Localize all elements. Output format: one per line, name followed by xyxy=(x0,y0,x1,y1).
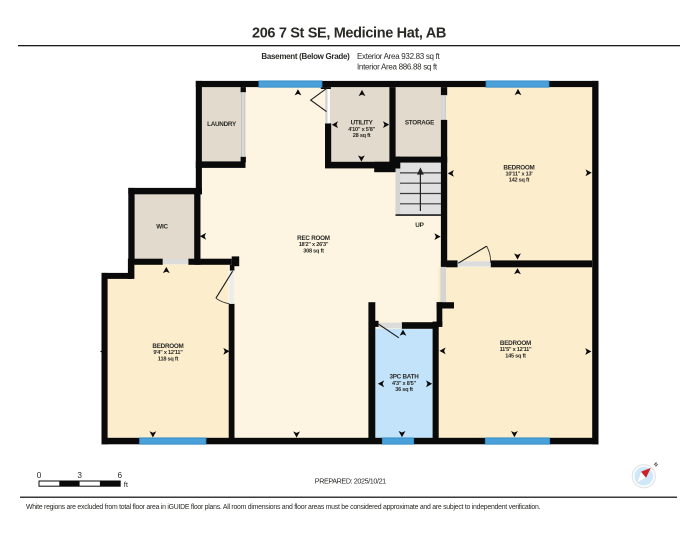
svg-text:9'4" x 12'11": 9'4" x 12'11" xyxy=(153,350,183,356)
svg-text:6: 6 xyxy=(118,471,123,480)
svg-text:145 sq ft: 145 sq ft xyxy=(505,353,526,359)
svg-text:UTILITY: UTILITY xyxy=(351,120,374,127)
svg-text:REC ROOM: REC ROOM xyxy=(297,235,330,242)
svg-text:Basement (Below Grade): Basement (Below Grade) xyxy=(261,52,350,61)
svg-text:308 sq ft: 308 sq ft xyxy=(303,248,324,254)
svg-text:4'3" x 8'5": 4'3" x 8'5" xyxy=(392,381,416,387)
svg-text:206 7 St SE, Medicine Hat, AB: 206 7 St SE, Medicine Hat, AB xyxy=(252,26,446,42)
svg-text:11'5" x 12'11": 11'5" x 12'11" xyxy=(500,347,532,353)
svg-text:3: 3 xyxy=(77,471,82,480)
svg-text:36 sq ft: 36 sq ft xyxy=(395,387,413,393)
svg-text:10'11" x 13': 10'11" x 13' xyxy=(506,172,534,178)
svg-text:BEDROOM: BEDROOM xyxy=(152,343,183,350)
svg-text:PREPARED: 2025/10/21: PREPARED: 2025/10/21 xyxy=(315,477,386,486)
svg-text:0: 0 xyxy=(37,471,42,480)
svg-text:118 sq ft: 118 sq ft xyxy=(158,356,179,362)
svg-text:Interior Area 886.88 sq ft: Interior Area 886.88 sq ft xyxy=(357,63,438,72)
svg-text:WIC: WIC xyxy=(156,223,168,230)
svg-text:28 sq ft: 28 sq ft xyxy=(353,133,371,139)
svg-text:4'10" x 5'8": 4'10" x 5'8" xyxy=(348,127,375,133)
svg-text:White regions are excluded fro: White regions are excluded from total fl… xyxy=(26,504,541,511)
svg-text:BEDROOM: BEDROOM xyxy=(503,164,534,171)
svg-text:3PC BATH: 3PC BATH xyxy=(389,374,419,381)
svg-text:STORAGE: STORAGE xyxy=(405,120,434,127)
svg-text:LAUNDRY: LAUNDRY xyxy=(207,121,237,128)
svg-text:142 sq ft: 142 sq ft xyxy=(509,178,530,184)
svg-text:UP: UP xyxy=(415,222,424,229)
svg-text:Exterior Area 932.83 sq ft: Exterior Area 932.83 sq ft xyxy=(357,52,441,61)
svg-text:18'2" x 26'3": 18'2" x 26'3" xyxy=(299,242,329,248)
svg-text:BEDROOM: BEDROOM xyxy=(500,340,531,347)
